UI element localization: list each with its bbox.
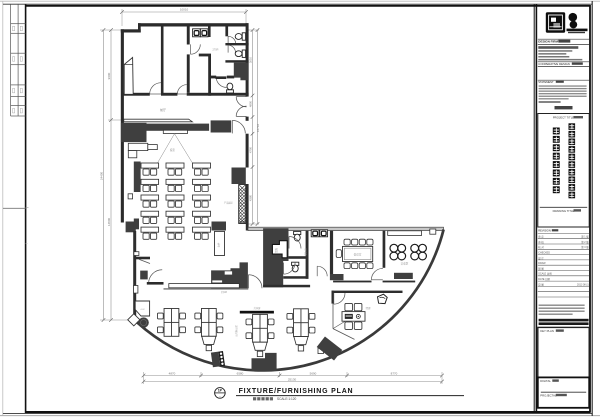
svg-text:卫生间: 卫生间: [304, 248, 308, 256]
svg-text:DRAWING TITLE: DRAWING TITLE: [553, 209, 575, 213]
svg-text:2013 08 月: 2013 08 月: [577, 282, 589, 286]
svg-text:第 1 版: 第 1 版: [581, 235, 589, 239]
svg-text:制 图: 制 图: [538, 266, 544, 270]
svg-text:5690: 5690: [310, 371, 317, 375]
svg-text:投影: 投影: [170, 148, 176, 152]
svg-text:CHECKED: CHECKED: [538, 252, 550, 255]
svg-text:PROJECT TITLE: PROJECT TITLE: [553, 116, 574, 120]
svg-text:DESIGN FIRM: DESIGN FIRM: [538, 40, 558, 44]
svg-text:14800: 14800: [107, 217, 111, 226]
svg-text:COOPERATIVE DESIGN: COOPERATIVE DESIGN: [538, 62, 570, 66]
svg-text:DATE 日期: DATE 日期: [538, 277, 550, 281]
svg-text:1P: 1P: [218, 389, 223, 393]
svg-text:校 对: 校 对: [538, 245, 544, 249]
svg-text:16710: 16710: [256, 123, 260, 132]
svg-text:4380: 4380: [248, 194, 252, 201]
svg-text:盥洗: 盥洗: [274, 248, 278, 253]
svg-text:25130: 25130: [288, 377, 297, 381]
svg-text:STATEMENT: STATEMENT: [538, 80, 554, 84]
svg-text:24400: 24400: [99, 171, 103, 180]
svg-text:见 图: 见 图: [538, 282, 544, 286]
svg-text:FIXTURE/FURNISHING PLAN: FIXTURE/FURNISHING PLAN: [239, 388, 354, 395]
svg-text:第 3 版: 第 3 版: [581, 245, 589, 249]
svg-text:10010: 10010: [180, 7, 189, 11]
svg-text:会议室: 会议室: [354, 253, 362, 257]
svg-text:前厅: 前厅: [160, 107, 166, 112]
svg-text:设 计: 设 计: [538, 256, 544, 260]
svg-text:第 2 版: 第 2 版: [581, 240, 589, 244]
svg-text:4800: 4800: [248, 100, 252, 107]
svg-text:--: --: [219, 395, 221, 398]
svg-text:约9M: 约9M: [221, 290, 227, 294]
svg-text:6580: 6580: [237, 371, 244, 375]
svg-text:审 定: 审 定: [538, 235, 544, 239]
svg-text:文件: 文件: [217, 242, 221, 247]
svg-text:SCALE:1:120: SCALE:1:120: [277, 397, 297, 401]
svg-text:DRAW: DRAW: [538, 262, 546, 265]
svg-text:PROJECTAL: PROJECTAL: [540, 394, 557, 398]
svg-text:8770: 8770: [391, 371, 398, 375]
svg-text:3610: 3610: [248, 56, 252, 63]
svg-text:REVISION: REVISION: [538, 229, 551, 233]
svg-text:洽谈区: 洽谈区: [401, 262, 409, 266]
svg-text:审 核: 审 核: [538, 240, 544, 244]
svg-text:4700: 4700: [248, 146, 252, 153]
svg-text:DIGITAL: DIGITAL: [540, 379, 551, 383]
svg-text:4870: 4870: [169, 371, 176, 375]
svg-text:SCALE 比例: SCALE 比例: [538, 272, 552, 276]
svg-text:经理: 经理: [366, 306, 371, 310]
svg-text:9600: 9600: [107, 72, 111, 79]
svg-text:KEY PLAN: KEY PLAN: [540, 329, 554, 333]
svg-text:270R: 270R: [213, 49, 219, 52]
